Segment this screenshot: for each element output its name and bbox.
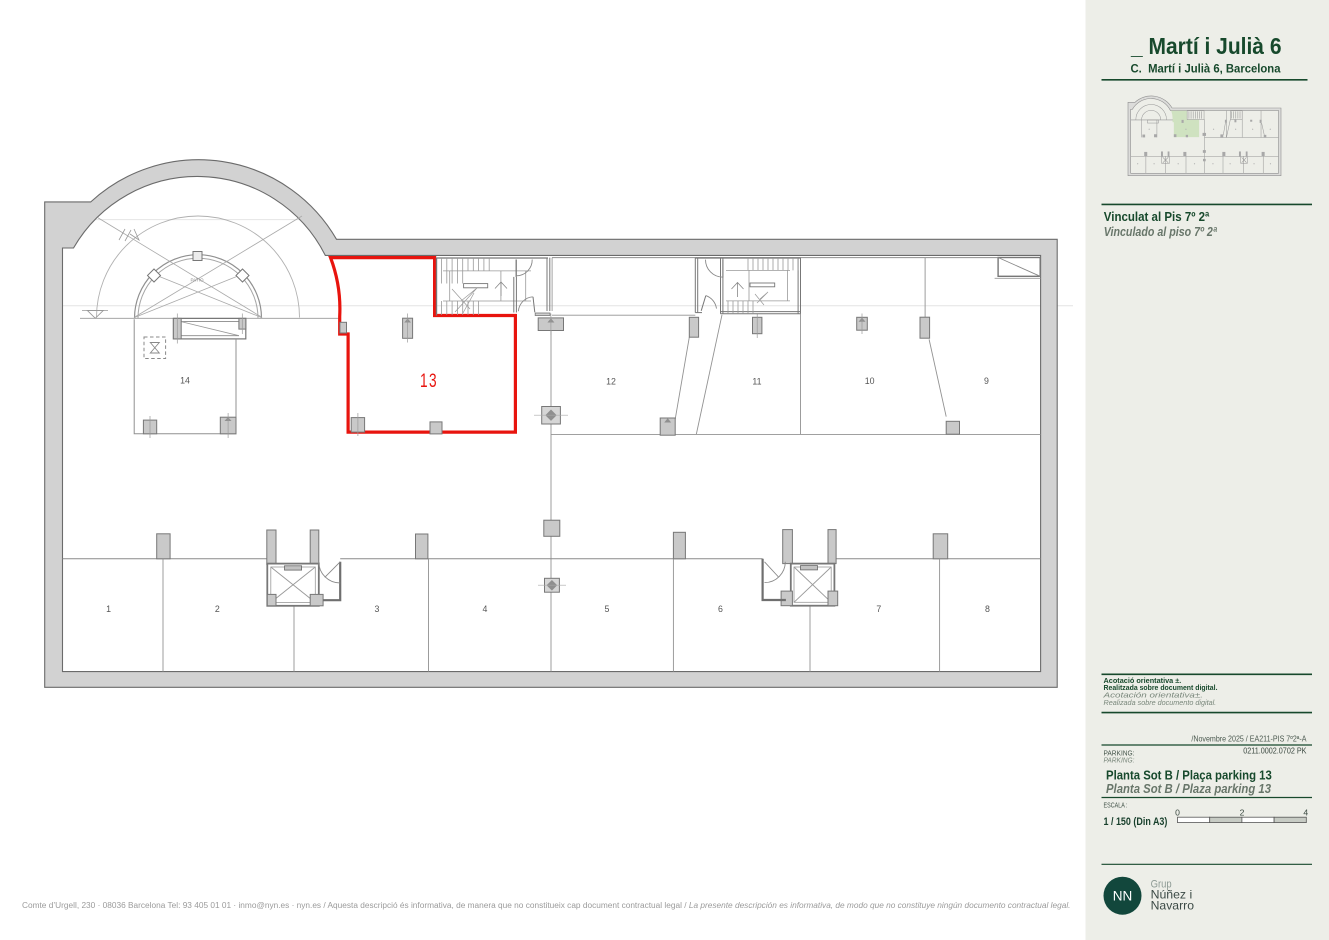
svg-text:8: 8 [985, 604, 990, 614]
svg-text:9: 9 [984, 376, 989, 386]
svg-text:11: 11 [752, 377, 761, 387]
svg-text:Vinculado al piso 7º 2ª: Vinculado al piso 7º 2ª [1104, 224, 1217, 239]
svg-text:Realizada sobre documento digi: Realizada sobre documento digital. [1104, 698, 1217, 707]
svg-text:3: 3 [374, 604, 379, 614]
svg-text:1 / 150 (Din A3): 1 / 150 (Din A3) [1104, 816, 1168, 828]
svg-text:Comte d’Urgell, 230 · 08036 Ba: Comte d’Urgell, 230 · 08036 Barcelona Te… [22, 901, 1071, 910]
svg-text:Vinculat al Pis 7º 2ª: Vinculat al Pis 7º 2ª [1104, 209, 1210, 224]
svg-text:1: 1 [106, 604, 111, 614]
svg-text:Navarro: Navarro [1151, 898, 1195, 912]
svg-text:Planta Sot B / Plaza parking 1: Planta Sot B / Plaza parking 13 [1106, 781, 1272, 796]
svg-text:2: 2 [1240, 807, 1245, 817]
svg-text:C. Martí i Julià 6, Barcelona: C. Martí i Julià 6, Barcelona [1131, 62, 1281, 76]
svg-text:PARKING:: PARKING: [1104, 756, 1135, 765]
svg-text:13: 13 [420, 370, 438, 392]
svg-text:7: 7 [876, 604, 881, 614]
svg-text:ESCALA :: ESCALA : [1104, 800, 1128, 809]
svg-text:_ Martí i Julià 6: _ Martí i Julià 6 [1130, 33, 1281, 59]
svg-text:5: 5 [604, 604, 609, 614]
svg-text:PATIO: PATIO [190, 278, 204, 283]
svg-text:10: 10 [865, 376, 875, 386]
svg-text:6: 6 [718, 604, 723, 614]
svg-text:12: 12 [606, 377, 616, 387]
svg-text:2: 2 [215, 604, 220, 614]
svg-text:NN: NN [1113, 889, 1133, 904]
svg-text:0: 0 [1175, 807, 1180, 817]
svg-text:14: 14 [180, 376, 190, 386]
svg-text:4: 4 [482, 604, 487, 614]
svg-text:/Novembre 2025 / EA211-PIS 7º2: /Novembre 2025 / EA211-PIS 7º2ª-A [1191, 735, 1307, 744]
svg-text:0211.0002.0702 PK: 0211.0002.0702 PK [1243, 747, 1307, 756]
svg-text:4: 4 [1303, 807, 1308, 817]
